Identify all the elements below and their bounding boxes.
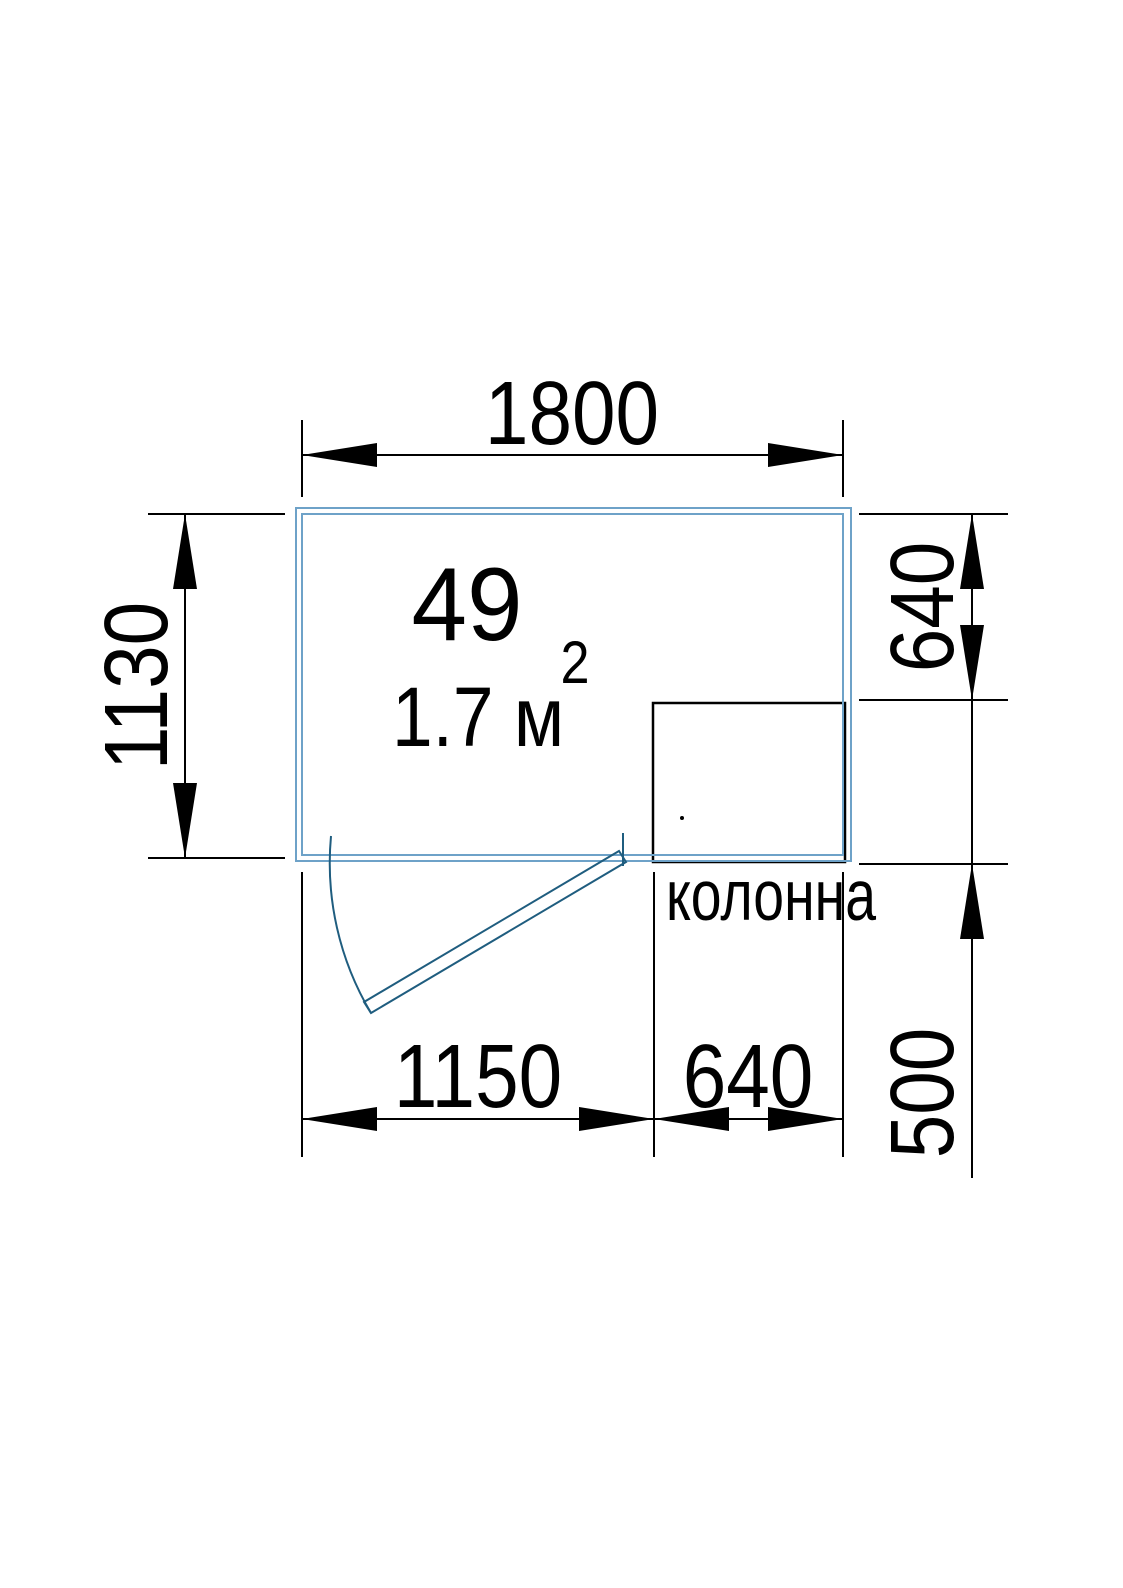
arrow-right-icon bbox=[579, 1107, 654, 1131]
dim-top-width-label: 1800 bbox=[485, 363, 659, 463]
dim-bottom-door-span-label: 1150 bbox=[394, 1026, 562, 1126]
column-hatch bbox=[380, 862, 1123, 1588]
column-label: колонна bbox=[666, 856, 877, 935]
arrow-up-icon bbox=[173, 514, 197, 589]
arrow-left-icon bbox=[302, 1107, 377, 1131]
dim-right-column-depth-label: 500 bbox=[872, 1028, 972, 1159]
column-block bbox=[380, 703, 1123, 1588]
hatch-dot bbox=[680, 816, 684, 820]
dim-right-column-offset-label: 640 bbox=[872, 542, 972, 673]
dim-left-height-label: 1130 bbox=[86, 602, 186, 770]
column-outline bbox=[653, 703, 845, 862]
arrow-left-icon bbox=[302, 443, 377, 467]
floor-plan-drawing: 1800 1130 640 500 1150 640 49 1.7 м 2 ко… bbox=[0, 0, 1123, 1588]
door-swing-arc bbox=[330, 836, 371, 1013]
room-area: 1.7 м bbox=[392, 670, 564, 764]
arrow-right-icon bbox=[768, 443, 843, 467]
floor-plan-page: 1800 1130 640 500 1150 640 49 1.7 м 2 ко… bbox=[0, 0, 1123, 1588]
room-number: 49 bbox=[411, 546, 522, 662]
arrow-up-icon bbox=[960, 864, 984, 939]
labels: 1800 1130 640 500 1150 640 49 1.7 м 2 ко… bbox=[86, 363, 972, 1158]
arrow-down-icon bbox=[173, 783, 197, 858]
dim-bottom-column-width-label: 640 bbox=[683, 1026, 814, 1126]
room-area-exponent: 2 bbox=[560, 629, 589, 696]
door-leaf bbox=[364, 851, 626, 1013]
